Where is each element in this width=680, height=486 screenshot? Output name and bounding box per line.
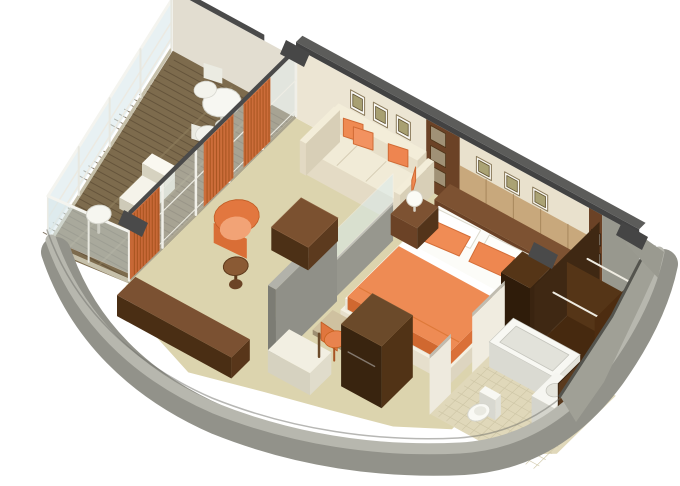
lamp-left xyxy=(407,191,423,207)
round-side-table xyxy=(223,257,248,276)
sofa-arm-left-front xyxy=(300,140,306,175)
balcony-side-table xyxy=(86,205,111,224)
floorplan-figure xyxy=(0,0,680,486)
balcony-chair-a xyxy=(194,81,217,98)
suite-floorplan-rendering xyxy=(0,0,680,486)
